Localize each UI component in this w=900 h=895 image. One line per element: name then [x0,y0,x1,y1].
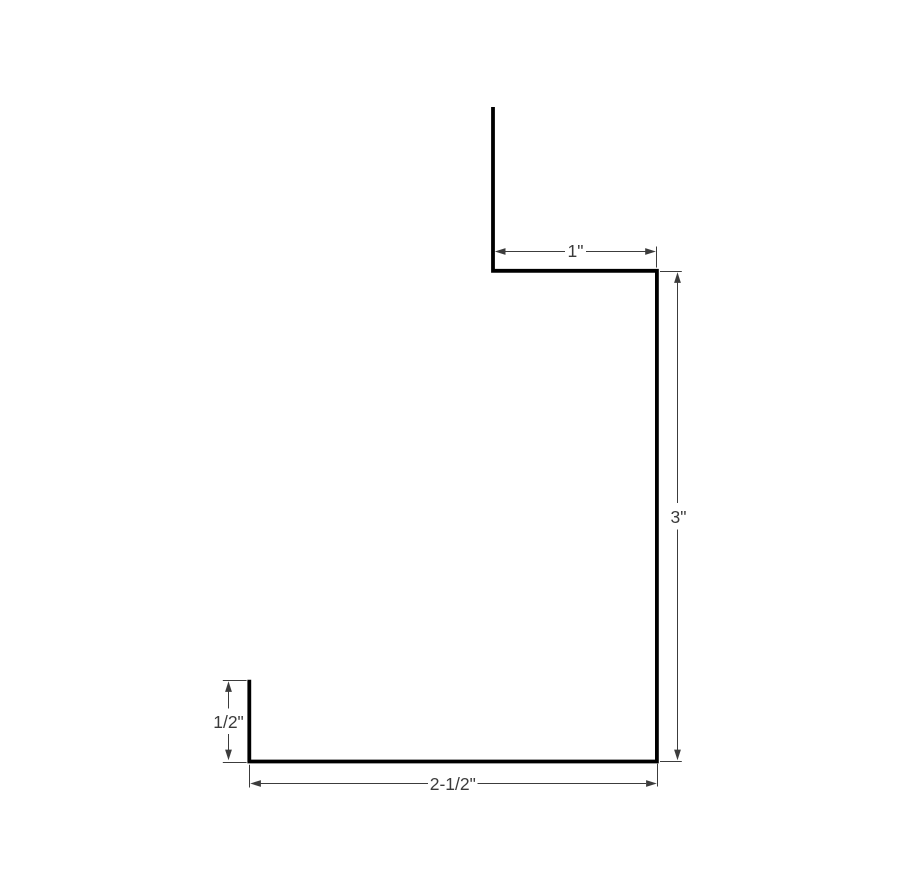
svg-text:1/2": 1/2" [213,712,244,732]
svg-text:2-1/2": 2-1/2" [430,774,476,794]
svg-text:1": 1" [568,241,584,261]
svg-text:3": 3" [671,507,687,527]
